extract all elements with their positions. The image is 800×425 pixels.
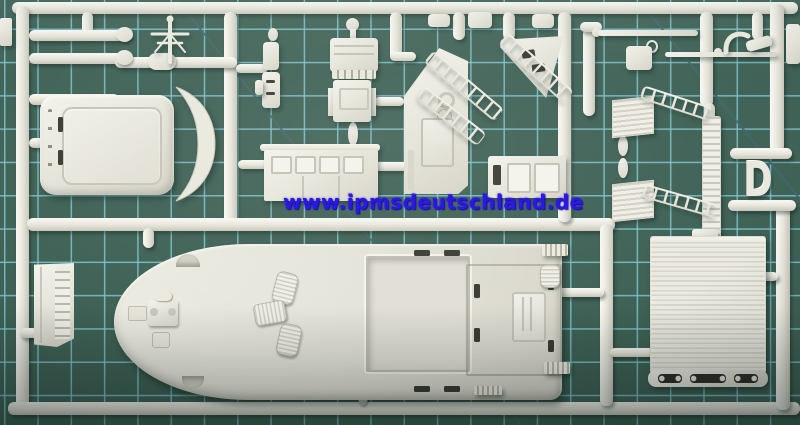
side-louver-ribs: [55, 271, 70, 339]
runner-top: [12, 2, 798, 14]
bow-plate: [128, 306, 147, 321]
deck-top-stub: [143, 228, 154, 248]
stern-comb-top: [542, 244, 568, 256]
sprue-photo: D: [0, 0, 800, 425]
side-louver-seam: [40, 267, 42, 343]
wheelhouse-right-stub: [374, 162, 408, 171]
ladder-strip-part: [702, 116, 721, 240]
runner-right-upper: [770, 4, 784, 152]
searchlight-knob: [268, 28, 278, 41]
binnacle-line1: [334, 45, 374, 47]
runner-right-lower: [776, 206, 790, 410]
searchlight-base: [262, 72, 280, 108]
deck-stern-stub: [558, 288, 604, 297]
runner-center-short: [583, 28, 595, 116]
windlass-motor: [154, 291, 172, 301]
stern-skylight: [512, 292, 546, 342]
stern-vent-part: [540, 264, 560, 288]
runner-middle: [27, 218, 615, 231]
cabin-roof-slot-2: [58, 150, 63, 165]
skylight-rib-1: [522, 297, 524, 331]
rail-base-slot-1: [658, 374, 682, 383]
wheelhouse-bottom-gate: [348, 122, 358, 146]
small-box-part: [626, 46, 652, 70]
deck-slot-4: [548, 340, 554, 352]
main-deck-part: [114, 244, 562, 400]
side-louver-panel-part: [34, 263, 74, 347]
runner-middle-vertical: [600, 224, 613, 406]
deck-slot-7: [414, 386, 430, 392]
skylight-rib-2: [530, 297, 532, 331]
coaming-strip-part: [168, 83, 222, 205]
deck-slot-8: [444, 386, 460, 392]
windlass-drum-left: [150, 308, 158, 316]
gate-stub-topright: [752, 12, 763, 40]
runner-tab-3: [532, 14, 554, 28]
boom-part-2-tip: [116, 50, 133, 65]
cabin-roof-panel: [62, 107, 162, 185]
windlass-drum-right: [168, 308, 176, 316]
window-box-slot: [493, 165, 501, 185]
searchlight-base-slot: [266, 80, 275, 83]
bow-vent-top: [176, 254, 200, 267]
rail-base-slot-3: [734, 374, 758, 383]
corrugated-roof-part: [650, 236, 766, 374]
gate-stub-453: [453, 12, 465, 40]
searchlight-arm: [255, 80, 263, 95]
yard-part-lower: [665, 52, 777, 57]
runner-divider-left: [224, 12, 237, 224]
hatch-gate-2: [618, 158, 628, 178]
gate-stub-390-elbow: [390, 52, 416, 61]
bow-vent-bottom: [182, 376, 204, 389]
deck-slot-6: [444, 250, 460, 256]
runner-bottom: [8, 402, 800, 415]
roof-railing-base: [648, 370, 768, 387]
louver-hatch-part-1: [612, 96, 654, 138]
cabin-roof-part: [40, 95, 174, 195]
runner-left: [16, 6, 29, 412]
windlass: [148, 300, 178, 326]
mast-part: [142, 12, 198, 66]
boom-part-1-tip: [116, 27, 133, 42]
wheelhouse-window-4: [343, 156, 364, 174]
binnacle-feet: [332, 70, 376, 79]
sprue-letter-d: D: [744, 152, 773, 208]
window-box-window-1: [507, 163, 531, 193]
searchlight-base-slot2: [266, 92, 275, 95]
console-body: [333, 80, 371, 122]
watermark-text: www.ipmsdeutschland.de: [283, 190, 584, 214]
bow-hatch: [152, 332, 170, 348]
yard-part-upper: [598, 30, 698, 36]
runner-tab-1: [428, 14, 450, 27]
window-box-window-2: [534, 163, 560, 193]
bridge-strip: [408, 150, 414, 190]
cargo-hatch-opening: [366, 256, 470, 372]
cabin-roof-rivets: [48, 109, 52, 181]
console-panel: [339, 88, 369, 110]
binnacle-body: [330, 38, 378, 72]
deck-slot-5: [414, 250, 430, 256]
wheelhouse-window-3: [319, 156, 340, 174]
binnacle-line2: [334, 53, 374, 55]
searchlight-body: [263, 42, 279, 70]
cowl-vent-2: [252, 299, 287, 326]
edge-part-topleft: [0, 18, 12, 46]
runner-topright: [700, 12, 713, 107]
cowl-vent-3: [275, 322, 303, 358]
stern-comb-lower: [474, 386, 502, 395]
runner-tab-2: [468, 12, 492, 28]
hatch-gate-1: [618, 136, 628, 156]
stern-comb-bottom: [544, 362, 570, 374]
cabin-roof-slot-1: [58, 117, 63, 132]
wheelhouse-window-2: [295, 156, 316, 174]
binnacle-stub: [374, 97, 404, 106]
deck-slot-2: [474, 328, 480, 342]
deck-slot-1: [474, 284, 480, 298]
wheelhouse-window-1: [271, 156, 292, 174]
roof-left-stub: [610, 348, 654, 357]
rail-base-slot-2: [690, 374, 726, 383]
edge-part-topright: [786, 24, 800, 64]
